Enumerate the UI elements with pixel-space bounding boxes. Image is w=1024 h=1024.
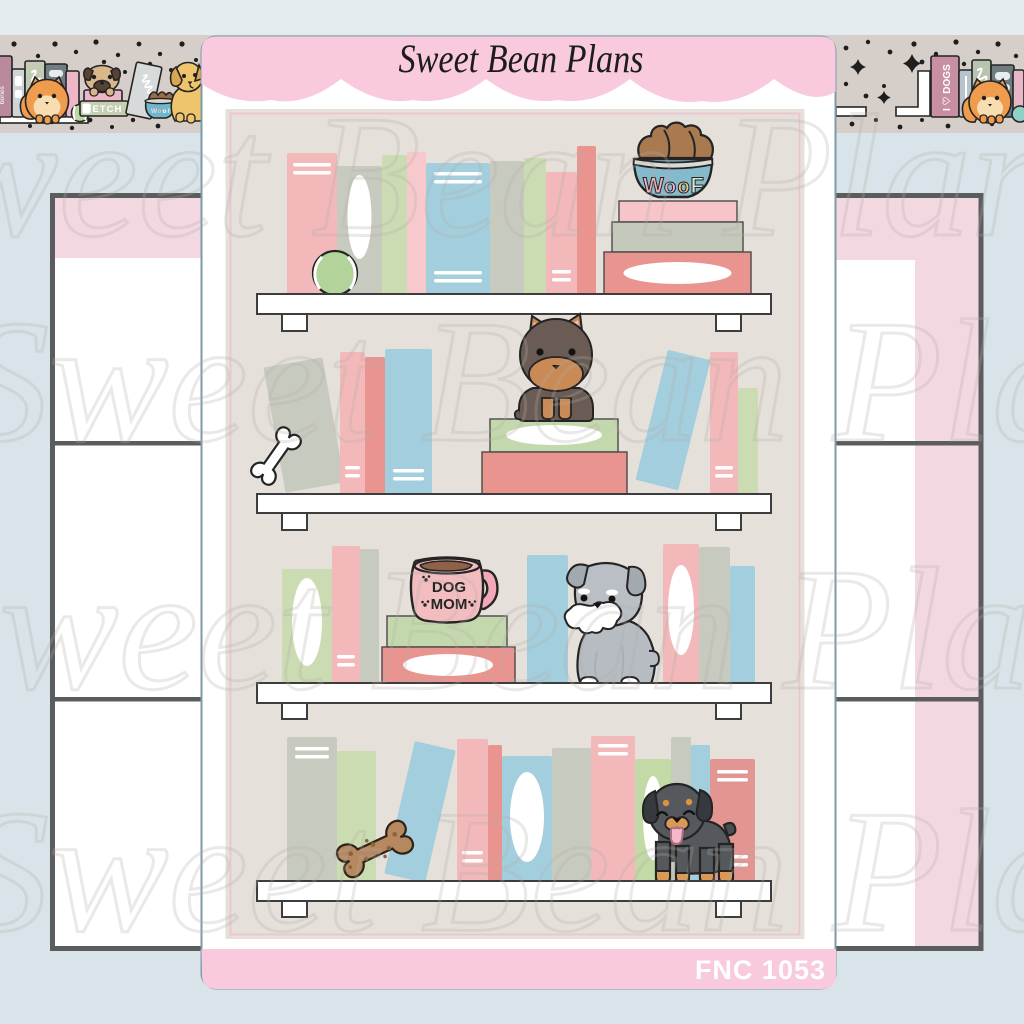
svg-text:o: o (163, 108, 167, 115)
svg-text:Sweet Bean Plans: Sweet Bean Plans (399, 36, 644, 81)
svg-text:MOM: MOM (431, 596, 468, 613)
svg-text:I ♡ DOGS: I ♡ DOGS (942, 64, 953, 111)
svg-text:FETCH: FETCH (86, 104, 123, 115)
svg-text:o: o (664, 176, 676, 198)
svg-text:o: o (158, 108, 162, 115)
svg-text:W: W (643, 173, 664, 198)
svg-text:DOG: DOG (432, 579, 466, 596)
svg-text:FNC 1053: FNC 1053 (695, 955, 826, 985)
svg-text:F: F (691, 173, 704, 198)
svg-text:bones: bones (0, 86, 6, 104)
svg-text:o: o (678, 176, 690, 198)
